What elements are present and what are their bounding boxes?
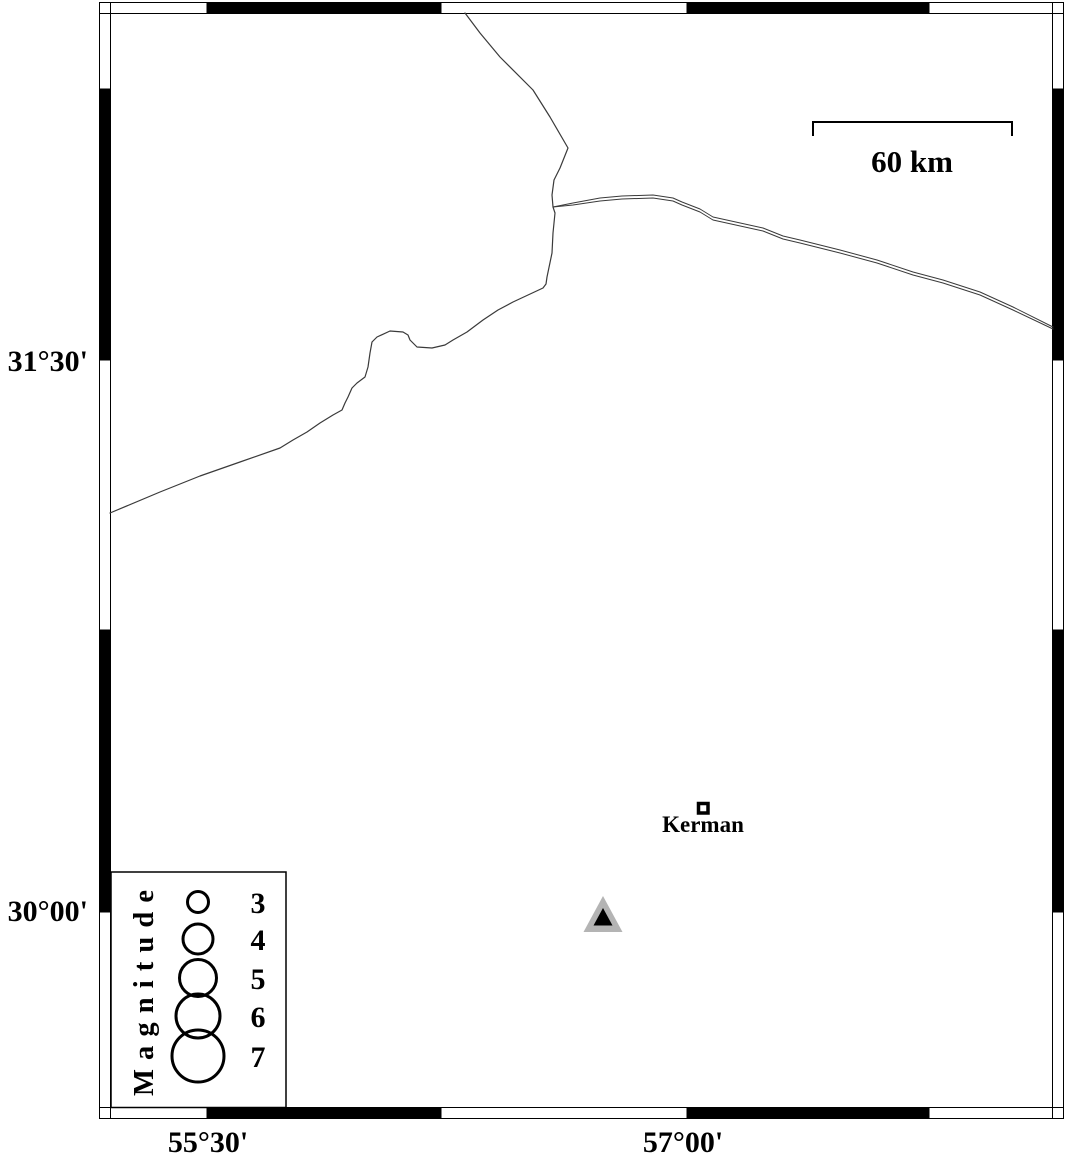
frame-seg (1053, 14, 1064, 90)
river-line (110, 13, 568, 513)
frame-seg (687, 3, 929, 14)
frame-seg (1053, 89, 1064, 360)
frame-seg (100, 14, 111, 90)
frame-seg (929, 3, 1053, 14)
longitude-label-55-30: 55°30' (168, 1126, 248, 1156)
frame-corner-br (1053, 1108, 1064, 1119)
frame-seg (100, 912, 111, 1108)
frame-seg (1053, 630, 1064, 912)
frame-seg (687, 1108, 929, 1119)
frame-seg (100, 89, 111, 360)
magnitude-label-6: 6 (251, 1001, 266, 1034)
scale-bar-bracket (813, 122, 1012, 136)
frame-seg (100, 360, 111, 630)
frame-seg (441, 3, 687, 14)
seismicity-map: 60 km Kerman M a g n i t u d e 3 4 5 6 7 (0, 0, 1066, 1156)
scale-bar-label: 60 km (871, 144, 953, 179)
frame-seg (100, 630, 111, 912)
frame-seg (207, 3, 441, 14)
longitude-label-57-00: 57°00' (643, 1126, 723, 1156)
frame-seg (111, 1108, 208, 1119)
magnitude-label-4: 4 (251, 924, 266, 957)
frame-seg (441, 1108, 687, 1119)
frame-seg (207, 1108, 441, 1119)
road-line-lower (553, 198, 1053, 329)
legend-title: M a g n i t u d e (128, 889, 160, 1096)
magnitude-label-7: 7 (251, 1041, 266, 1074)
station-triangle-marker (584, 896, 623, 932)
frame-seg (111, 3, 208, 14)
city-kerman: Kerman (662, 804, 744, 838)
magnitude-legend: M a g n i t u d e 3 4 5 6 7 (111, 872, 286, 1108)
latitude-label-30-00: 30°00' (8, 895, 88, 928)
scale-bar: 60 km (813, 122, 1012, 179)
frame-corner-tl (100, 3, 111, 14)
frame-seg (1053, 360, 1064, 630)
frame-corner-tr (1053, 3, 1064, 14)
magnitude-label-5: 5 (251, 963, 266, 996)
frame-corner-bl (100, 1108, 111, 1119)
frame-seg (929, 1108, 1053, 1119)
latitude-label-31-30: 31°30' (8, 345, 88, 378)
road-line-upper (553, 195, 1053, 327)
magnitude-label-3: 3 (251, 887, 266, 920)
frame-seg (1053, 912, 1064, 1108)
city-label: Kerman (662, 812, 744, 837)
